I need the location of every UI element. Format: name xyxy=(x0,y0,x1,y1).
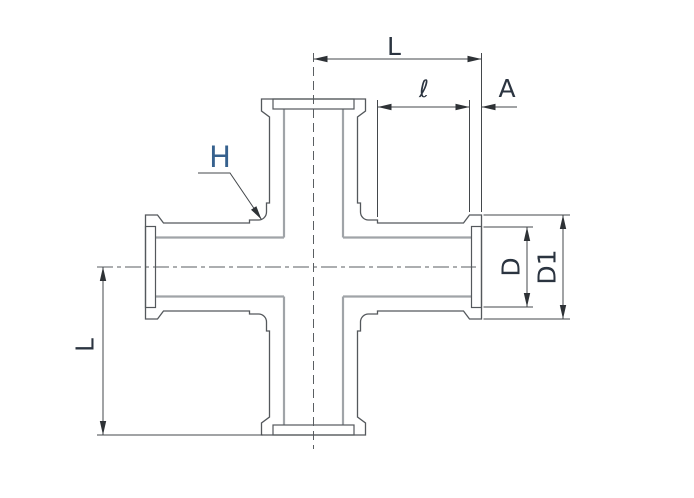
h-leader-line xyxy=(198,173,262,220)
label-length-left: L xyxy=(71,338,100,352)
dimension-lines xyxy=(97,53,570,435)
label-socket-depth: ℓ xyxy=(418,75,429,103)
label-diameter-flange: D1 xyxy=(533,249,562,284)
dimension-labels: L ℓ A H D D1 L xyxy=(71,32,562,352)
label-length-top: L xyxy=(387,32,401,61)
label-diameter-inner: D xyxy=(497,257,526,276)
drawing-canvas: L ℓ A H D D1 L xyxy=(0,0,694,498)
label-flange-thickness: A xyxy=(498,74,515,103)
centerlines xyxy=(97,53,476,449)
label-weld-ref: H xyxy=(209,140,231,174)
technical-drawing: L ℓ A H D D1 L xyxy=(0,0,694,498)
